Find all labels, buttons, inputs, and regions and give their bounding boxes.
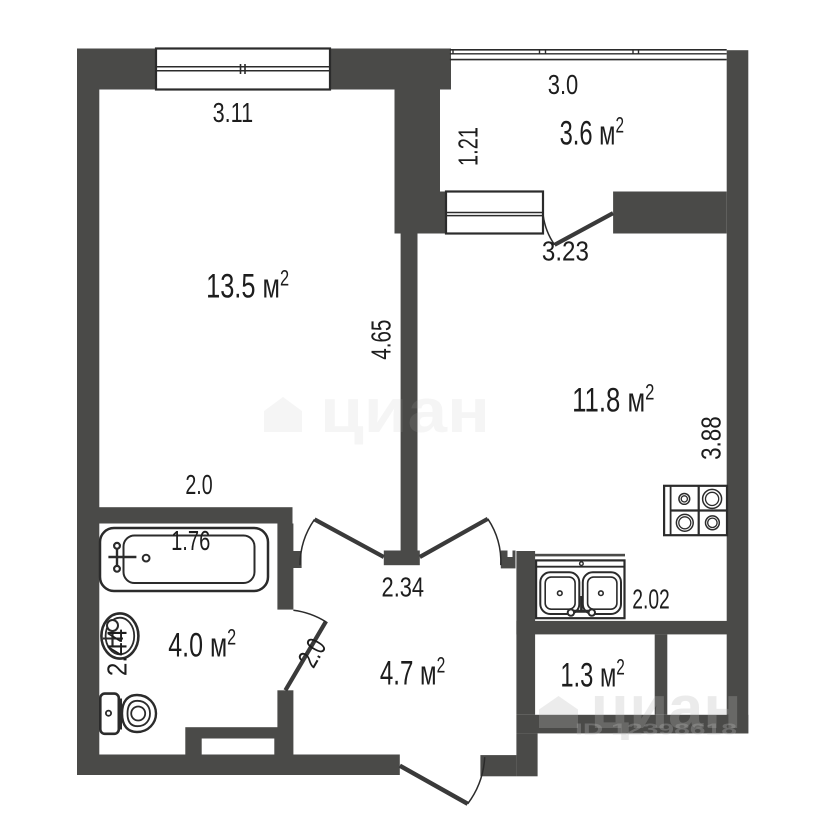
svg-text:циан: циан (320, 377, 490, 446)
svg-text:4.7 м2: 4.7 м2 (380, 653, 445, 693)
svg-text:4.65: 4.65 (365, 320, 396, 360)
svg-text:1.21: 1.21 (453, 127, 484, 166)
svg-text:2.44: 2.44 (101, 629, 132, 676)
svg-text:2.34: 2.34 (382, 572, 425, 603)
svg-text:3.6 м2: 3.6 м2 (560, 113, 624, 153)
svg-text:2.02: 2.02 (632, 584, 670, 615)
svg-text:3.11: 3.11 (213, 97, 254, 128)
svg-text:ID 12398618: ID 12398618 (575, 722, 737, 739)
svg-text:3.23: 3.23 (542, 236, 589, 267)
svg-text:2.0: 2.0 (185, 469, 212, 500)
svg-text:4.0 м2: 4.0 м2 (168, 625, 236, 665)
svg-text:3.0: 3.0 (548, 69, 579, 100)
svg-text:13.5 м2: 13.5 м2 (206, 266, 289, 306)
svg-text:1.76: 1.76 (171, 525, 210, 556)
svg-text:11.8 м2: 11.8 м2 (572, 380, 654, 420)
svg-text:3.88: 3.88 (695, 416, 726, 460)
